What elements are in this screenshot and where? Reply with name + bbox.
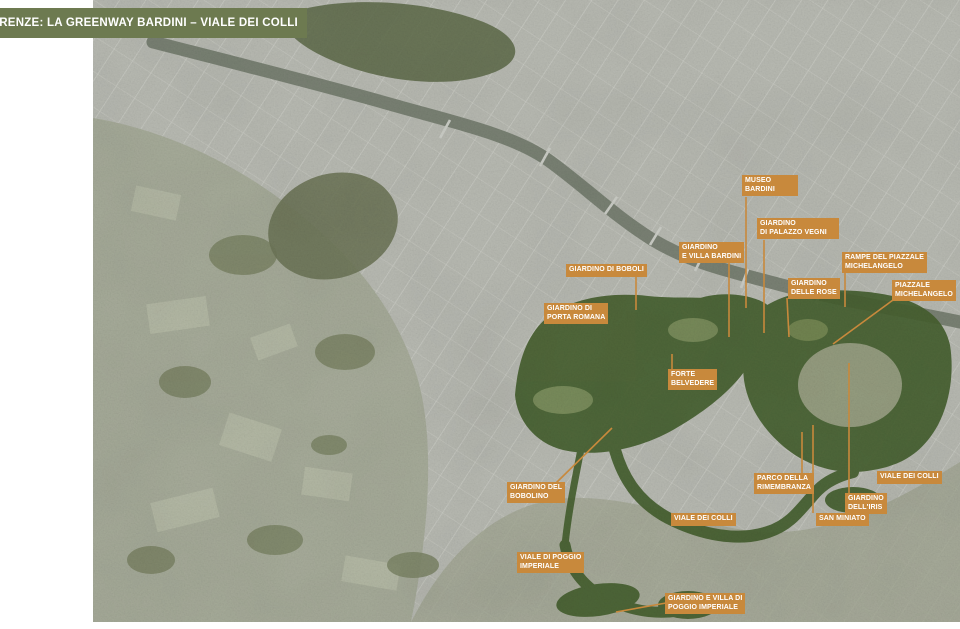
- map-label-giardino-e-villa-di-poggio-imperiale: GIARDINO E VILLA DI POGGIO IMPERIALE: [665, 593, 745, 614]
- map-label-giardino-di-palazzo-vegni: GIARDINO DI PALAZZO VEGNI: [757, 218, 839, 239]
- map-label-giardino-di-boboli: GIARDINO DI BOBOLI: [566, 264, 647, 277]
- label-layer: MUSEO BARDINIGIARDINO DI PALAZZO VEGNIGI…: [0, 0, 960, 629]
- map-label-viale-dei-colli-east: VIALE DEI COLLI: [877, 471, 942, 484]
- map-label-giardino-dell-iris: GIARDINO DELL'IRIS: [845, 493, 887, 514]
- map-label-giardino-e-villa-bardini: GIARDINO E VILLA BARDINI: [679, 242, 744, 263]
- map-label-rampe-del-piazzale-michelangelo: RAMPE DEL PIAZZALE MICHELANGELO: [842, 252, 927, 273]
- map-label-san-miniato: SAN MINIATO: [816, 513, 869, 526]
- map-label-giardino-di-porta-romana: GIARDINO DI PORTA ROMANA: [544, 303, 608, 324]
- map-label-viale-di-poggio-imperiale: VIALE DI POGGIO IMPERIALE: [517, 552, 584, 573]
- map-label-giardino-delle-rose: GIARDINO DELLE ROSE: [788, 278, 840, 299]
- map-label-giardino-del-bobolino: GIARDINO DEL BOBOLINO: [507, 482, 565, 503]
- page-title: PIANTA DI FIRENZE: LA GREENWAY BARDINI –…: [0, 17, 298, 29]
- title-banner: PIANTA DI FIRENZE: LA GREENWAY BARDINI –…: [0, 8, 307, 38]
- map-label-museo-bardini: MUSEO BARDINI: [742, 175, 798, 196]
- map-label-viale-dei-colli-center: VIALE DEI COLLI: [671, 513, 736, 526]
- map-label-forte-belvedere: FORTE BELVEDERE: [668, 369, 717, 390]
- map-label-parco-della-rimembranza: PARCO DELLA RIMEMBRANZA: [754, 473, 814, 494]
- plan-page: MUSEO BARDINIGIARDINO DI PALAZZO VEGNIGI…: [0, 0, 960, 629]
- map-label-piazzale-michelangelo: PIAZZALE MICHELANGELO: [892, 280, 956, 301]
